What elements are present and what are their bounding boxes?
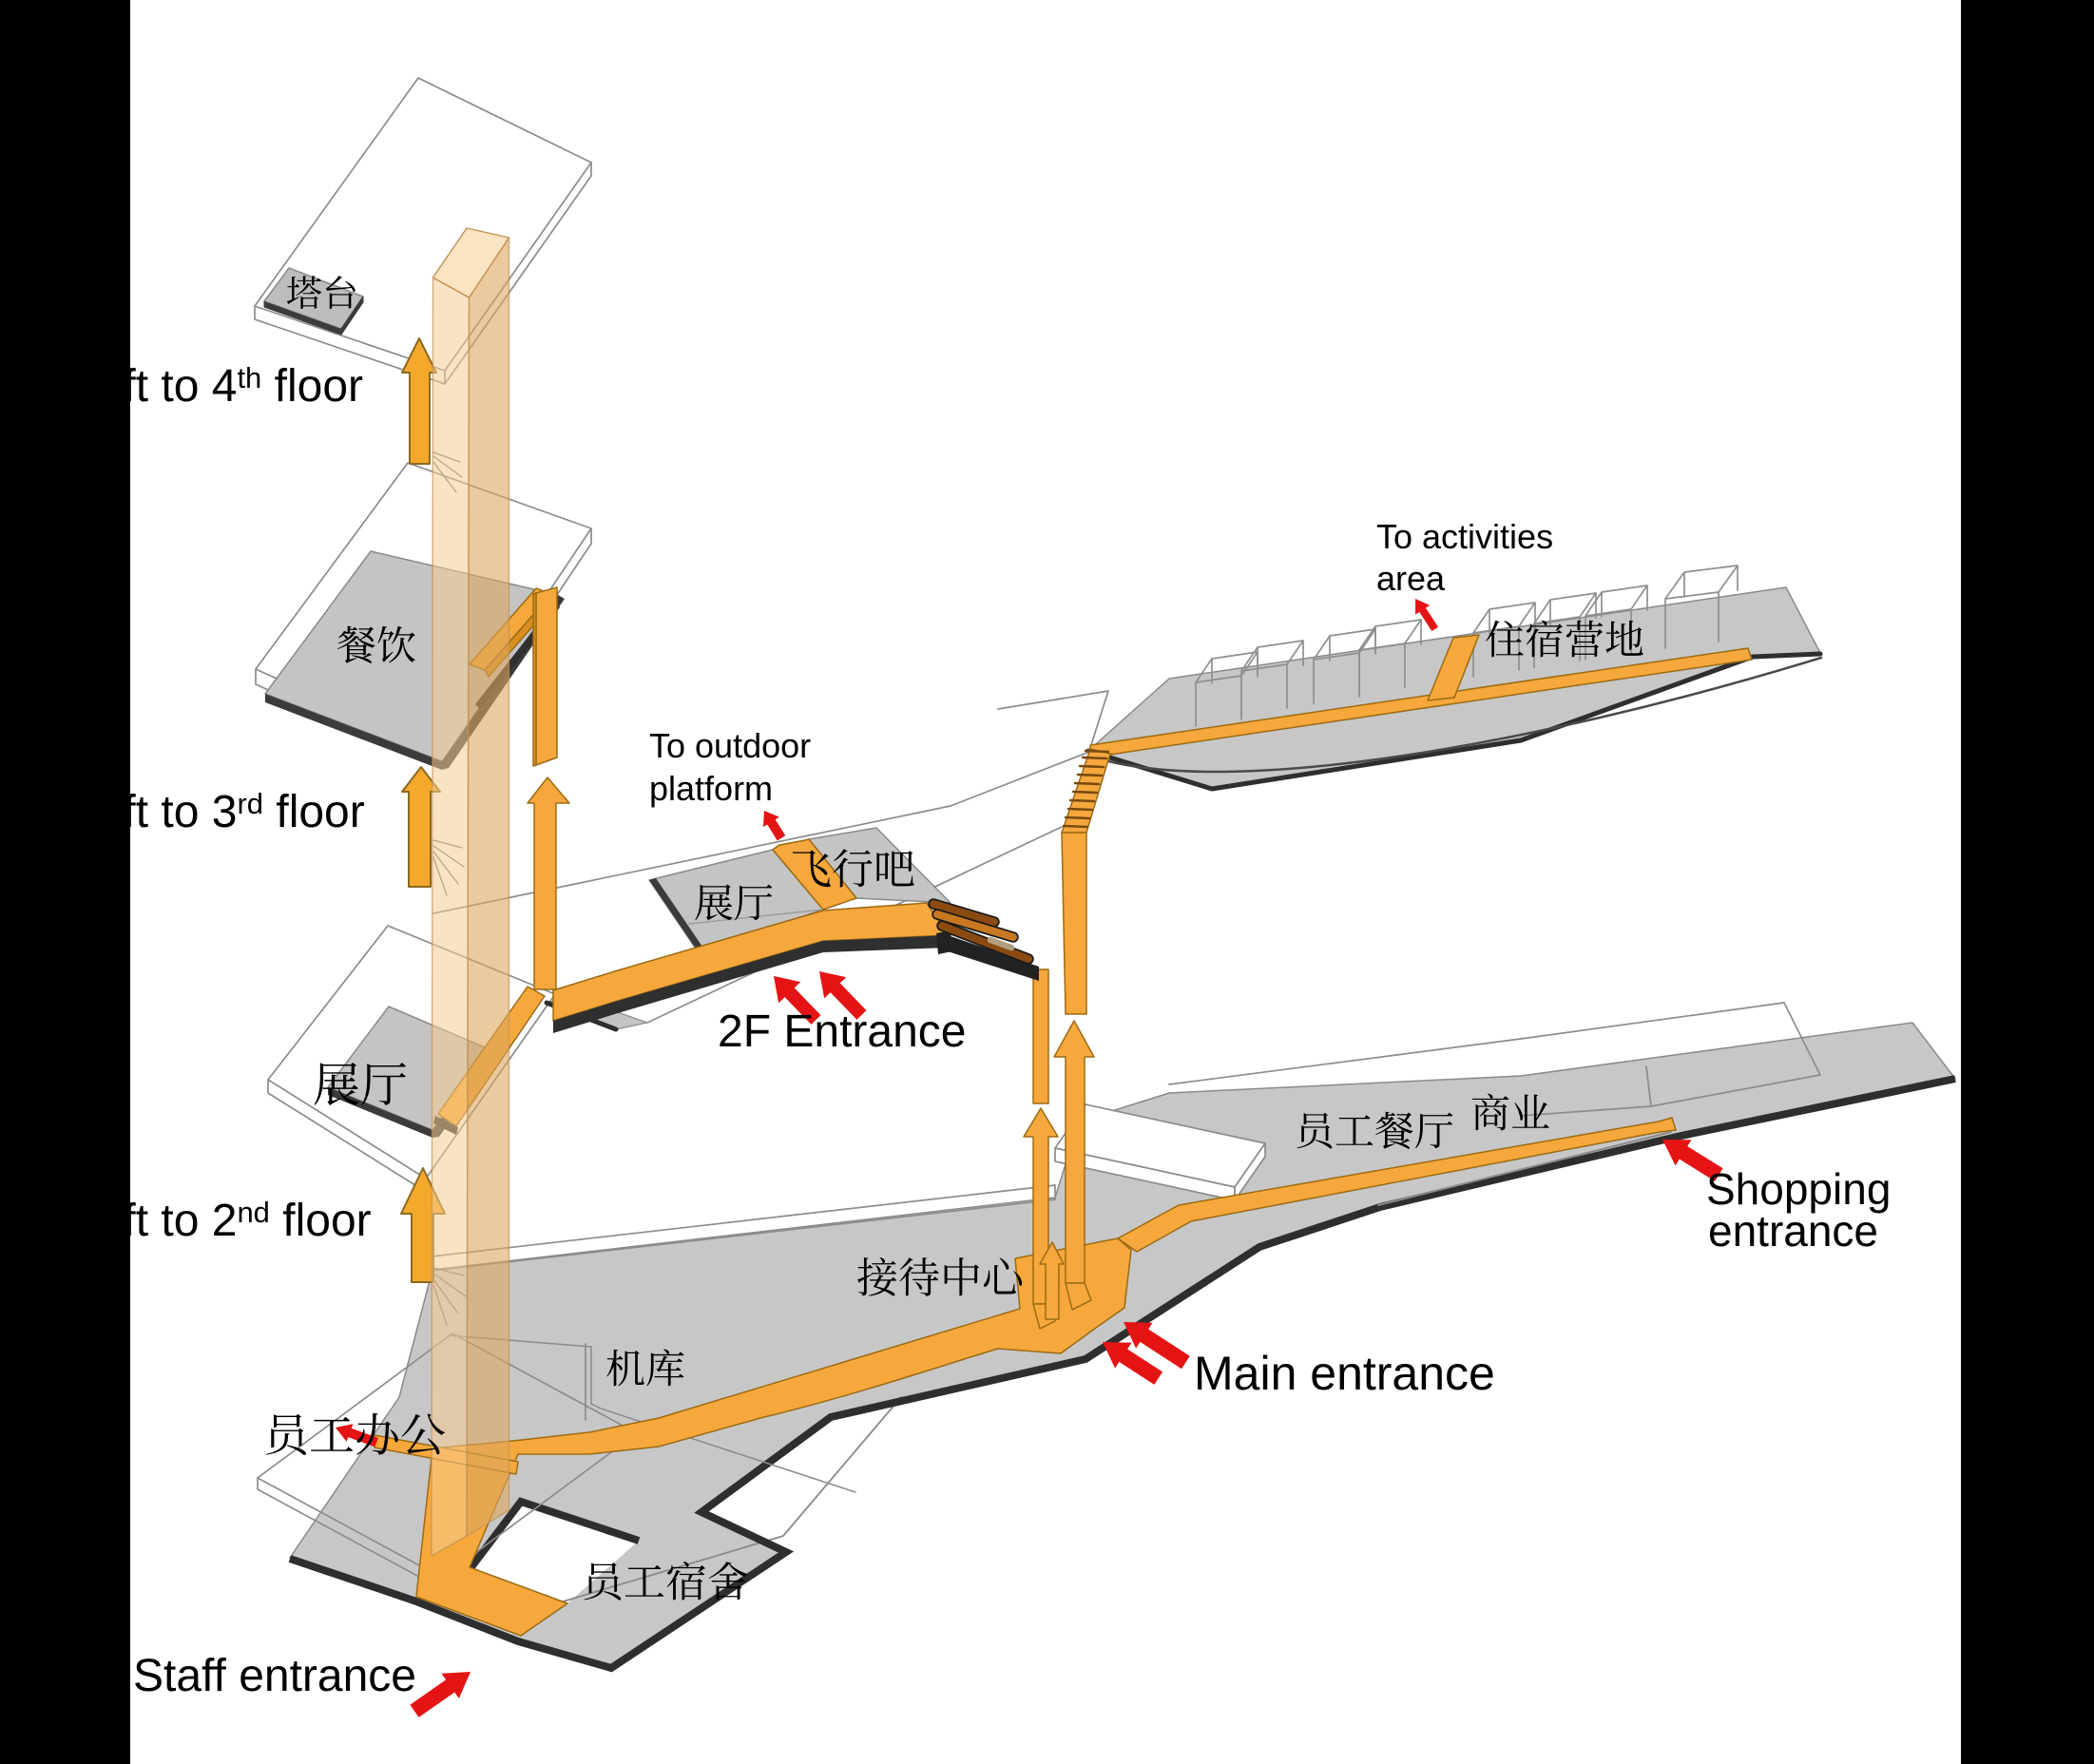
- svg-text:To outdoor: To outdoor: [649, 726, 811, 765]
- svg-text:2F Entrance: 2F Entrance: [718, 1007, 966, 1057]
- svg-text:platform: platform: [649, 769, 773, 808]
- svg-text:area: area: [1376, 559, 1446, 598]
- svg-text:Staff entrance: Staff entrance: [133, 1651, 416, 1701]
- svg-text:To activities: To activities: [1376, 517, 1553, 556]
- svg-text:Main entrance: Main entrance: [1194, 1347, 1495, 1400]
- svg-text:entrance: entrance: [1708, 1206, 1878, 1256]
